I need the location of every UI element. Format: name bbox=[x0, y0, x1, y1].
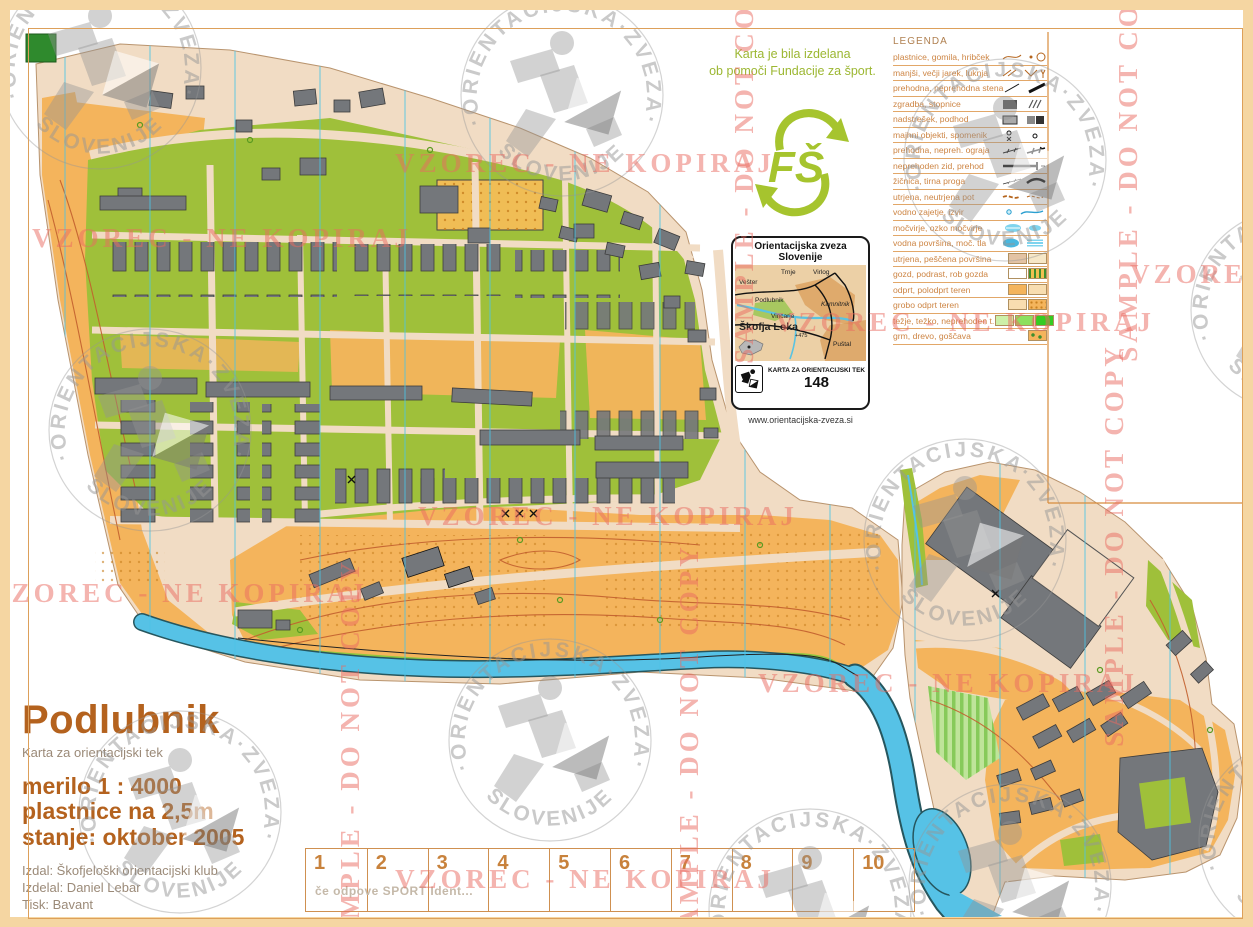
map-contour-interval: plastnice na 2,5m bbox=[22, 799, 244, 824]
map-type-label: KARTA ZA ORIENTACIJSKI TEK bbox=[767, 367, 866, 374]
contours-knoll-icon bbox=[1001, 51, 1047, 63]
control-cell-4: 4 bbox=[488, 849, 549, 911]
control-cell-8: 8 bbox=[732, 849, 793, 911]
funding-note-line1: Karta je bila izdelana bbox=[690, 46, 895, 63]
author-credit: Izdelal: Daniel Lebar bbox=[22, 880, 244, 897]
funding-note: Karta je bila izdelana ob pomoči Fundaci… bbox=[690, 46, 895, 80]
legend-item: gozd, podrast, rob gozda bbox=[893, 267, 1047, 283]
inset-label-trnje: Trnje bbox=[781, 269, 796, 276]
legend-item-label: nadstrešek, podhod bbox=[893, 114, 969, 124]
control-cell-3: 3 bbox=[428, 849, 489, 911]
legend-item-label: grm, drevo, goščava bbox=[893, 331, 971, 341]
ditch-pit-icon bbox=[1001, 67, 1047, 79]
legend-item: žičnica, tirna proga bbox=[893, 174, 1047, 190]
map-number: 148 bbox=[767, 374, 866, 391]
fight-green-swatch bbox=[994, 315, 1054, 327]
legend-item: zgradba, stopnice bbox=[893, 97, 1047, 113]
paved-sand-swatch bbox=[1001, 253, 1047, 265]
legend-item-label: odprt, polodprt teren bbox=[893, 285, 970, 295]
legend-item-label: žičnica, tirna proga bbox=[893, 176, 965, 186]
canopy-underpass-icon bbox=[1001, 113, 1047, 125]
inset-label-vester: Vešter bbox=[739, 279, 757, 286]
legend-item: utrjena, peščena površina bbox=[893, 252, 1047, 268]
legend-item: plastnice, gomila, hribček bbox=[893, 50, 1047, 66]
legend-item: majhni objekti, spomenik bbox=[893, 128, 1047, 144]
control-cell-9: 9 bbox=[792, 849, 853, 911]
orienteering-runner-icon bbox=[735, 365, 763, 393]
building-stairs-icon bbox=[1001, 98, 1047, 110]
marsh-icon bbox=[1001, 222, 1047, 234]
legend-item: odprt, polodprt teren bbox=[893, 283, 1047, 299]
legend-item: prehodna, nepreh. ograja bbox=[893, 143, 1047, 159]
legend-item: nadstrešek, podhod bbox=[893, 112, 1047, 128]
map-status-date: stanje: oktober 2005 bbox=[22, 825, 244, 850]
legend-item-label: manjši, večji jarek, luknja bbox=[893, 68, 988, 78]
water-area-icon bbox=[1001, 237, 1047, 249]
courtyard-green bbox=[1139, 777, 1191, 829]
inset-label-pustal: Puštal bbox=[833, 341, 851, 348]
legend-item-label: težje, težko, neprehoden t. bbox=[893, 316, 994, 326]
control-cell-6: 6 bbox=[610, 849, 671, 911]
legend-item-label: utrjena, neutrjena pot bbox=[893, 192, 974, 202]
card-type-block: KARTA ZA ORIENTACIJSKI TEK 148 bbox=[767, 367, 866, 391]
location-inset-map: Trnje Virlog Vešter Podlubnik Vincarje K… bbox=[735, 265, 866, 361]
legend: LEGENDA plastnice, gomila, hribček manjš… bbox=[893, 36, 1047, 345]
map-sheet: LEGENDA plastnice, gomila, hribček manjš… bbox=[0, 0, 1253, 927]
control-cell-7: 7 bbox=[671, 849, 732, 911]
legend-item: vodna površina, moč. tla bbox=[893, 236, 1047, 252]
legend-item-label: gozd, podrast, rob gozda bbox=[893, 269, 988, 279]
legend-item: utrjena, neutrjena pot bbox=[893, 190, 1047, 206]
legend-item-label: plastnice, gomila, hribček bbox=[893, 52, 990, 62]
control-cell-5: 5 bbox=[549, 849, 610, 911]
rough-open-swatch bbox=[1001, 299, 1047, 311]
inset-label-podlubnik: Podlubnik bbox=[755, 297, 784, 304]
paths-icon bbox=[1001, 191, 1047, 203]
sports-foundation-logo: FŠ bbox=[742, 92, 862, 232]
legend-item-label: zgradba, stopnice bbox=[893, 99, 961, 109]
legend-item: težje, težko, neprehoden t. bbox=[893, 314, 1047, 330]
legend-item: grm, drevo, goščava bbox=[893, 329, 1047, 345]
cableway-railway-icon bbox=[1001, 175, 1047, 187]
legend-item: vodno zajetje, izvir bbox=[893, 205, 1047, 221]
publisher-credit: Izdal: Škofjeloški orientacijski klub bbox=[22, 863, 244, 880]
inset-label-city: Škofja Loka bbox=[739, 321, 798, 333]
open-swatch bbox=[1001, 284, 1047, 296]
map-subtitle: Karta za orientacijski tek bbox=[22, 745, 244, 760]
legend-item: prehodna, neprehodna stena bbox=[893, 81, 1047, 97]
legend-item-label: prehodna, nepreh. ograja bbox=[893, 145, 990, 155]
control-cell-2: 2 bbox=[367, 849, 428, 911]
map-title: Podlubnik bbox=[22, 698, 244, 743]
federation-name: Orientacijska zveza Slovenije bbox=[735, 241, 866, 263]
legend-item-label: vodno zajetje, izvir bbox=[893, 207, 964, 217]
legend-frame-lines bbox=[1048, 32, 1243, 503]
federation-card: Orientacijska zveza Slovenije bbox=[731, 236, 870, 410]
legend-item: manjši, večji jarek, luknja bbox=[893, 66, 1047, 82]
map-scale: merilo 1 : 4000 bbox=[22, 774, 244, 799]
inset-label-vincarje: Vincarje bbox=[771, 313, 794, 320]
legend-item: močvirje, ozko močvirje bbox=[893, 221, 1047, 237]
bush-tree-swatch bbox=[1001, 330, 1047, 342]
inset-label-virlog: Virlog bbox=[813, 269, 830, 276]
control-cell-1: 1 bbox=[306, 849, 367, 911]
water-spring-icon bbox=[1001, 206, 1047, 218]
title-block: Podlubnik Karta za orientacijski tek mer… bbox=[22, 698, 244, 914]
fs-logo-letters: FŠ bbox=[768, 141, 824, 192]
inset-label-peak: +475 bbox=[795, 333, 807, 339]
federation-website: www.orientacijska-zveza.si bbox=[731, 415, 870, 425]
impassable-wall-icon bbox=[1001, 160, 1047, 172]
legend-item-label: neprehoden zid, prehod bbox=[893, 161, 984, 171]
legend-item-label: vodna površina, moč. tla bbox=[893, 238, 986, 248]
card-bottom-row: KARTA ZA ORIENTACIJSKI TEK 148 bbox=[735, 365, 866, 393]
inset-label-kamnitnik: Kamnitnik bbox=[821, 301, 850, 308]
control-punch-card: 1 2 3 4 5 6 7 8 9 10 bbox=[305, 848, 915, 912]
legend-item: neprehoden zid, prehod bbox=[893, 159, 1047, 175]
legend-item-label: močvirje, ozko močvirje bbox=[893, 223, 982, 233]
legend-item-label: utrjena, peščena površina bbox=[893, 254, 991, 264]
legend-item-label: majhni objekti, spomenik bbox=[893, 130, 987, 140]
sportident-fallback-note: če odpove SPORT Ident... bbox=[315, 884, 473, 898]
legend-title: LEGENDA bbox=[893, 36, 1047, 47]
forest-swatch bbox=[1001, 268, 1047, 280]
legend-item: grobo odprt teren bbox=[893, 298, 1047, 314]
small-objects-icon bbox=[1001, 129, 1047, 141]
print-credit: Tisk: Bavant bbox=[22, 897, 244, 914]
control-cell-10: 10 bbox=[853, 849, 914, 911]
legend-item-label: prehodna, neprehodna stena bbox=[893, 83, 1003, 93]
fence-lines-icon bbox=[1001, 144, 1047, 156]
legend-item-label: grobo odprt teren bbox=[893, 300, 959, 310]
wall-lines-icon bbox=[1003, 82, 1049, 94]
funding-note-line2: ob pomoči Fundacije za šport. bbox=[690, 63, 895, 80]
